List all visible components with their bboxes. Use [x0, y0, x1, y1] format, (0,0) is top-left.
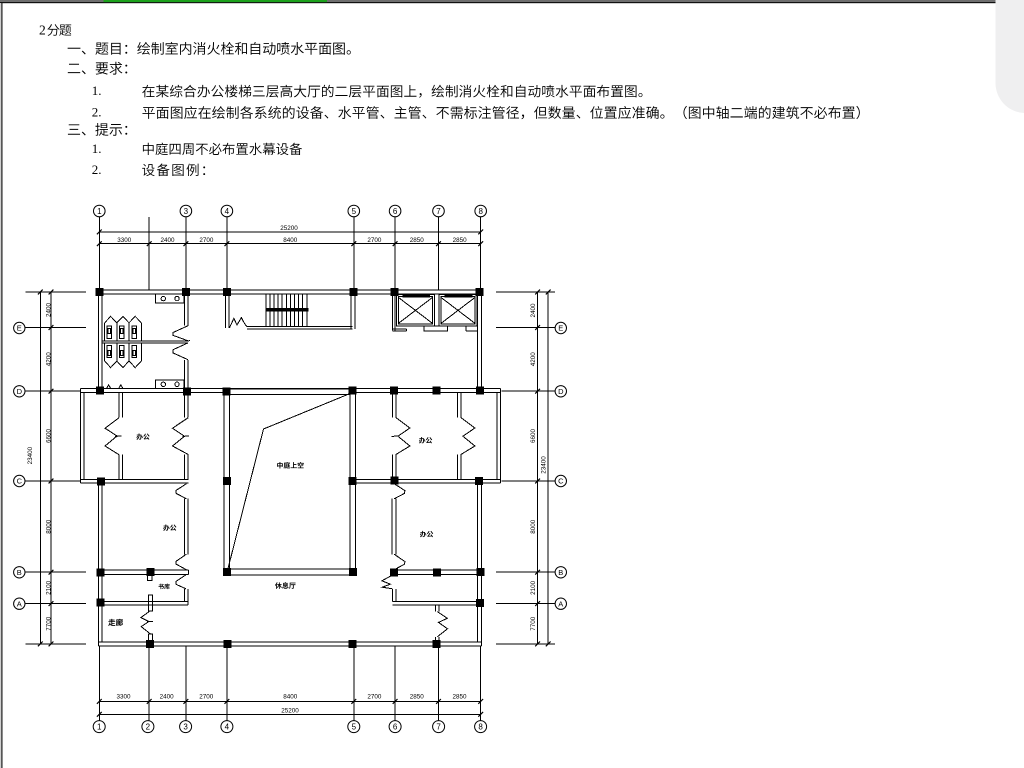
svg-text:4200: 4200 [46, 352, 53, 367]
svg-text:7700: 7700 [46, 616, 53, 631]
svg-text:C: C [17, 477, 23, 486]
svg-text:4: 4 [225, 723, 230, 732]
svg-text:3: 3 [183, 723, 188, 732]
svg-text:5: 5 [352, 207, 357, 216]
svg-text:B: B [17, 568, 22, 577]
svg-text:8400: 8400 [283, 694, 298, 701]
svg-text:6600: 6600 [530, 429, 537, 444]
svg-text:6: 6 [393, 723, 398, 732]
svg-text:4: 4 [225, 207, 230, 216]
svg-text:2100: 2100 [46, 580, 53, 595]
svg-text:2.: 2. [92, 105, 102, 120]
svg-text:2.: 2. [92, 162, 102, 177]
svg-text:6: 6 [393, 207, 398, 216]
svg-text:6600: 6600 [46, 429, 53, 444]
svg-text:8: 8 [478, 723, 483, 732]
svg-text:2: 2 [39, 23, 46, 38]
svg-text:A: A [558, 599, 563, 608]
svg-text:5: 5 [352, 723, 357, 732]
svg-text:23400: 23400 [541, 456, 548, 474]
svg-text:3: 3 [184, 207, 189, 216]
svg-text:1.: 1. [92, 141, 102, 156]
svg-text:7: 7 [436, 723, 441, 732]
svg-text:25200: 25200 [281, 708, 299, 715]
svg-text:2400: 2400 [530, 303, 537, 318]
svg-text:1: 1 [97, 723, 102, 732]
svg-text:2400: 2400 [160, 694, 175, 701]
svg-text:2850: 2850 [410, 694, 425, 701]
svg-text:B: B [558, 568, 563, 577]
svg-text:2700: 2700 [367, 694, 382, 701]
svg-text:2: 2 [146, 723, 151, 732]
svg-text:7: 7 [436, 207, 441, 216]
svg-text:2400: 2400 [160, 237, 175, 244]
svg-text:A: A [17, 599, 22, 608]
svg-text:25200: 25200 [280, 225, 298, 232]
svg-text:2700: 2700 [367, 237, 382, 244]
svg-text:4200: 4200 [530, 352, 537, 367]
svg-text:23400: 23400 [27, 446, 34, 464]
svg-text:1: 1 [97, 207, 102, 216]
svg-text:8000: 8000 [530, 519, 537, 534]
svg-text:E: E [17, 324, 22, 333]
svg-text:2700: 2700 [199, 694, 214, 701]
svg-text:2100: 2100 [530, 580, 537, 595]
svg-text:8400: 8400 [283, 237, 298, 244]
svg-text:1.: 1. [92, 83, 102, 98]
svg-text:D: D [558, 387, 564, 396]
svg-text:3300: 3300 [116, 694, 131, 701]
svg-text:2400: 2400 [46, 303, 53, 318]
svg-text:E: E [558, 324, 563, 333]
svg-text:2850: 2850 [453, 237, 468, 244]
svg-text:7700: 7700 [530, 616, 537, 631]
svg-text:D: D [17, 387, 23, 396]
svg-text:2850: 2850 [410, 237, 425, 244]
svg-text:8: 8 [478, 207, 483, 216]
svg-text:2850: 2850 [452, 694, 467, 701]
svg-text:3300: 3300 [117, 237, 132, 244]
svg-text:8000: 8000 [46, 519, 53, 534]
svg-text:C: C [558, 477, 564, 486]
svg-text:2700: 2700 [199, 237, 214, 244]
